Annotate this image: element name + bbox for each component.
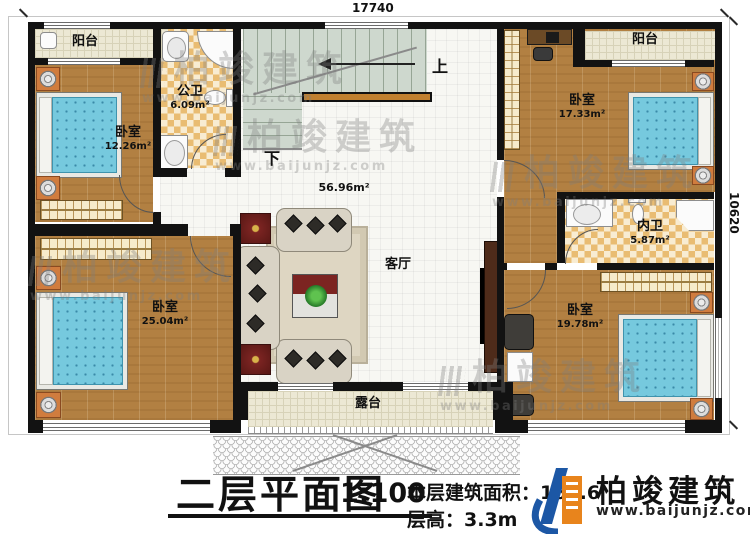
wall-segment	[685, 60, 714, 67]
wall-segment	[110, 22, 325, 29]
wall-segment	[497, 263, 507, 270]
sink-basin	[573, 204, 601, 225]
room-label-bedroom-tr: 卧室17.33m²	[559, 94, 605, 120]
side-table	[240, 344, 271, 375]
stair-arrow-head	[318, 58, 331, 70]
cushion	[248, 284, 266, 302]
wall-segment	[28, 58, 48, 65]
window	[278, 383, 333, 390]
floor-height-text: 层高：3.3m	[407, 505, 517, 532]
nightstand	[36, 392, 61, 418]
room-label-bedroom-br: 卧室19.78m²	[557, 304, 603, 330]
cushion	[328, 349, 346, 367]
window	[43, 423, 210, 431]
tv	[480, 268, 484, 344]
stair-direction-line	[330, 63, 415, 65]
window	[612, 60, 685, 67]
vanity-counter	[566, 199, 613, 227]
mattress	[623, 319, 697, 397]
cushion	[284, 349, 302, 367]
wall-segment	[468, 382, 493, 391]
wardrobe	[504, 30, 520, 150]
stairs-lower-flight	[243, 93, 302, 149]
window	[528, 423, 685, 431]
wall-segment	[597, 263, 714, 270]
bathroom-sink	[162, 31, 189, 62]
pillow	[697, 319, 711, 397]
nightstand	[692, 72, 714, 91]
wall-segment	[153, 212, 161, 224]
brand-logo-icon	[528, 464, 590, 534]
window	[403, 383, 468, 390]
armchair	[504, 314, 534, 350]
wall-segment	[497, 22, 504, 160]
room-label-public-bath: 公卫6.09m²	[170, 85, 209, 111]
pillow	[39, 97, 52, 173]
corridor-floor	[504, 192, 557, 263]
pillow	[39, 297, 53, 385]
wardrobe	[40, 200, 123, 220]
wall-segment	[497, 197, 504, 382]
nightstand	[690, 398, 713, 420]
window	[325, 22, 408, 29]
mattress	[633, 97, 698, 165]
nightstand	[36, 176, 60, 200]
stairs-upper-flight	[243, 29, 427, 93]
cushion	[306, 216, 324, 234]
room-label-terrace: 露台	[355, 397, 381, 412]
wall-segment	[557, 192, 714, 199]
wall-segment	[210, 420, 241, 433]
stair-railing	[302, 92, 432, 102]
brand-website: www.baijunjz.com	[596, 503, 750, 519]
sink-basin	[164, 140, 185, 166]
desk-chair	[533, 47, 553, 61]
wall-segment	[495, 420, 528, 433]
wall-segment	[573, 29, 585, 67]
wall-segment	[408, 22, 573, 29]
sofa-bottom	[276, 339, 352, 384]
dimension-right: 10620	[727, 192, 741, 234]
wall-segment	[28, 224, 188, 236]
nightstand	[692, 166, 714, 185]
wall-segment	[233, 236, 241, 382]
room-label-living: 客厅	[385, 258, 411, 273]
wall-segment	[557, 192, 565, 263]
wall-segment	[715, 22, 722, 318]
nightstand	[690, 292, 713, 313]
nightstand	[36, 266, 61, 290]
wall-segment	[153, 29, 161, 175]
sofa-top	[276, 208, 352, 252]
bed-bl	[36, 292, 128, 390]
bed-tr	[628, 92, 714, 170]
room-label-balcony-tr: 阳台	[632, 33, 658, 48]
mattress	[53, 297, 123, 385]
floor-plan-sheet: 阳台 卧室12.26m² 公卫6.09m² 卧室25.04m² 客厅 56.96…	[0, 0, 750, 541]
wardrobe	[600, 272, 712, 292]
cushion	[284, 214, 302, 232]
stairs-down-label: 下	[264, 150, 280, 168]
plant	[305, 285, 327, 307]
dimension-tick	[729, 16, 738, 25]
desk	[527, 29, 572, 45]
side-table	[507, 352, 533, 382]
dimension-top: 17740	[352, 1, 394, 15]
window	[715, 318, 722, 398]
wall-segment	[573, 22, 722, 29]
wall-segment	[153, 168, 187, 177]
wardrobe	[40, 238, 152, 260]
title-underline	[168, 514, 432, 518]
vanity-counter	[159, 135, 188, 169]
living-area-label: 56.96m²	[318, 182, 369, 195]
cushion	[246, 314, 264, 332]
cushion	[328, 214, 346, 232]
cushion	[306, 351, 324, 369]
wall-segment	[230, 224, 241, 236]
nightstand	[36, 67, 60, 91]
tv-cabinet	[484, 241, 498, 373]
wall-segment	[685, 420, 722, 433]
pillow	[698, 97, 711, 165]
wall-segment	[333, 382, 403, 391]
wall-segment	[493, 382, 513, 420]
wall-segment	[545, 263, 557, 270]
toilet-tank	[226, 89, 233, 107]
coffee-table	[292, 274, 338, 318]
cushion	[246, 256, 264, 274]
room-label-bedroom-tl: 卧室12.26m²	[105, 126, 151, 152]
stairs-up-label: 上	[432, 58, 448, 76]
sink-basin	[167, 37, 186, 59]
balcony-basin	[40, 32, 57, 49]
side-table	[240, 213, 271, 244]
room-label-balcony-tl: 阳台	[72, 35, 98, 50]
wall-segment	[585, 60, 612, 67]
terrace-railing	[248, 427, 493, 434]
room-label-bedroom-bl: 卧室25.04m²	[142, 301, 188, 327]
dimension-tick	[729, 420, 738, 429]
laptop	[546, 32, 559, 43]
wall-segment	[28, 420, 43, 433]
room-label-private-bath: 内卫5.87m²	[630, 220, 669, 246]
wall-segment	[233, 29, 241, 177]
window	[44, 22, 110, 29]
brand-logo-svg	[528, 464, 590, 534]
sofa-left	[236, 246, 280, 350]
wall-segment	[233, 382, 248, 420]
window	[48, 58, 120, 65]
bed-br	[618, 314, 714, 402]
